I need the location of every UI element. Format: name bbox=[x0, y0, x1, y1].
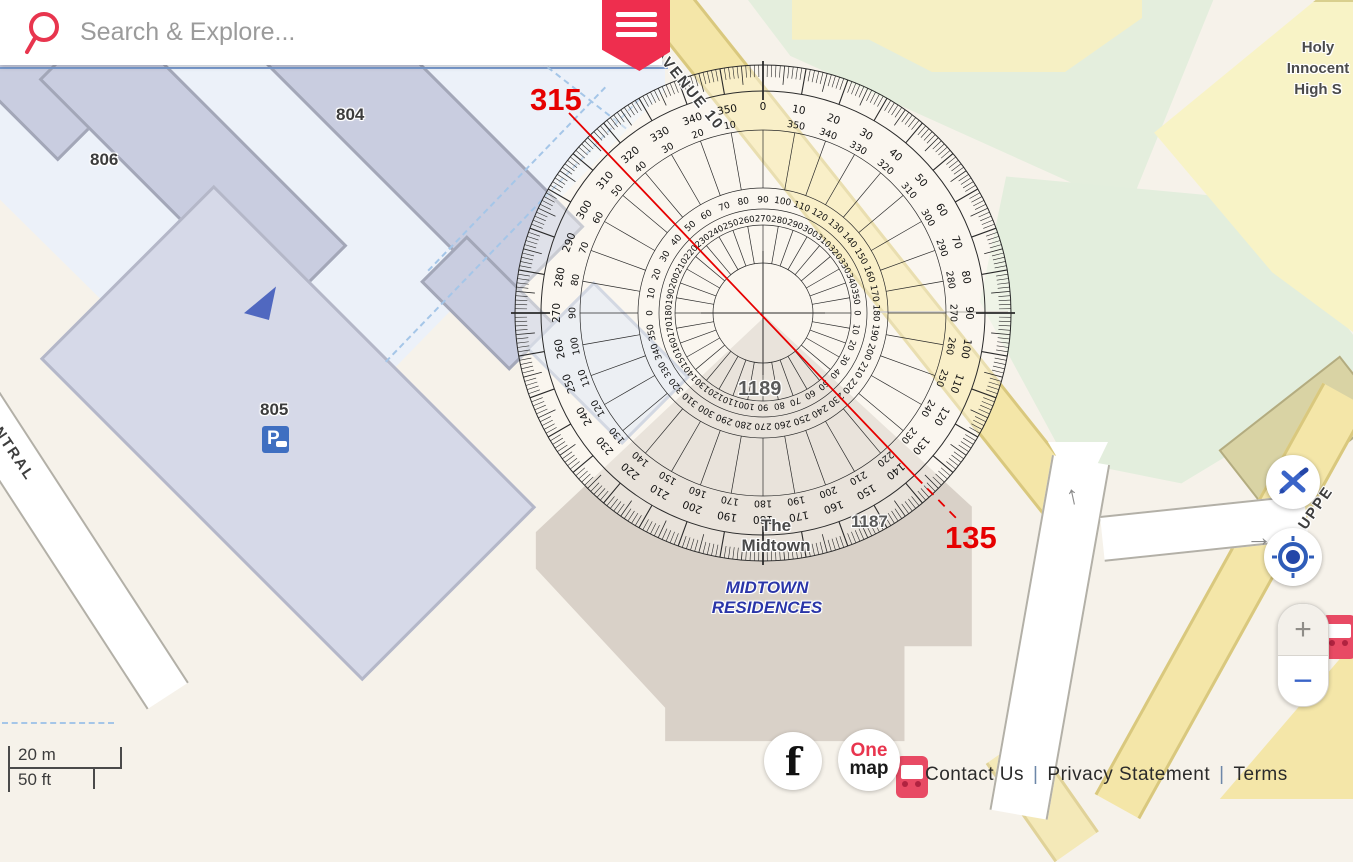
school-label: Holy Innocent High S bbox=[1278, 37, 1353, 100]
zoom-in-button[interactable]: + bbox=[1278, 604, 1328, 656]
privacy-statement-link[interactable]: Privacy Statement bbox=[1047, 764, 1210, 785]
footer-links: Contact Us|Privacy Statement|Terms bbox=[925, 764, 1288, 786]
residences-line2: RESIDENCES bbox=[692, 598, 842, 618]
bearing-label-315: 315 bbox=[530, 82, 582, 118]
svg-text:180: 180 bbox=[754, 498, 772, 509]
svg-text:80: 80 bbox=[737, 196, 750, 208]
terms-link[interactable]: Terms bbox=[1234, 764, 1288, 785]
svg-text:0: 0 bbox=[852, 310, 862, 315]
midtown-name-line1: The bbox=[740, 516, 812, 536]
scale-metric-label: 20 m bbox=[18, 745, 56, 765]
vehicle-body bbox=[1327, 624, 1351, 638]
scale-imperial-label: 50 ft bbox=[18, 770, 51, 790]
link-separator: | bbox=[1024, 764, 1047, 785]
bearing-label-135: 135 bbox=[945, 520, 997, 556]
svg-text:80: 80 bbox=[959, 270, 973, 285]
residences-label: MIDTOWN RESIDENCES bbox=[692, 578, 842, 618]
link-separator: | bbox=[1210, 764, 1233, 785]
protractor-tool[interactable]: 0102030405060708090100110120130140150160… bbox=[503, 53, 1023, 573]
svg-text:270: 270 bbox=[551, 303, 563, 323]
vehicle-wheel bbox=[902, 781, 908, 787]
zoom-control: + − bbox=[1277, 603, 1329, 707]
svg-text:180: 180 bbox=[871, 304, 881, 321]
plus-icon: + bbox=[1294, 613, 1312, 647]
pencil-ruler-icon bbox=[1276, 465, 1310, 499]
svg-text:180: 180 bbox=[665, 305, 675, 321]
onemap-logo-map: map bbox=[849, 760, 888, 778]
residences-line1: MIDTOWN bbox=[692, 578, 842, 598]
drawing-tools-button[interactable] bbox=[1266, 455, 1320, 509]
search-icon[interactable] bbox=[22, 9, 64, 57]
building-label-805: 805 bbox=[260, 400, 288, 420]
school-line2: Innocent bbox=[1278, 58, 1353, 79]
svg-text:0: 0 bbox=[646, 310, 656, 316]
search-input[interactable] bbox=[78, 7, 662, 59]
svg-text:0: 0 bbox=[760, 101, 767, 113]
svg-text:90: 90 bbox=[758, 402, 769, 412]
parking-icon: P bbox=[262, 426, 289, 453]
map-app: { "search": { "placeholder": "Search & E… bbox=[0, 0, 1353, 799]
target-icon bbox=[1271, 535, 1315, 579]
svg-text:90: 90 bbox=[757, 196, 769, 206]
svg-text:10: 10 bbox=[849, 323, 861, 335]
zoom-out-button[interactable]: − bbox=[1278, 656, 1328, 706]
building-label-1187: 1187 bbox=[851, 512, 888, 532]
contact-us-link[interactable]: Contact Us bbox=[925, 764, 1024, 785]
svg-text:10: 10 bbox=[646, 287, 658, 300]
midtown-name-line2: Midtown bbox=[740, 536, 812, 556]
svg-text:90: 90 bbox=[963, 306, 975, 319]
onemap-logo[interactable]: One map bbox=[838, 729, 900, 791]
facebook-button[interactable]: f bbox=[764, 732, 822, 790]
car-glyph bbox=[276, 441, 287, 447]
school-line3: High S bbox=[1278, 79, 1353, 100]
vehicle-wheel bbox=[915, 781, 921, 787]
svg-text:270: 270 bbox=[755, 215, 771, 225]
midtown-name-label: The Midtown bbox=[740, 516, 812, 556]
svg-text:80: 80 bbox=[569, 273, 582, 287]
svg-text:270: 270 bbox=[754, 421, 771, 431]
school-line1: Holy bbox=[1278, 37, 1353, 58]
facebook-icon: f bbox=[785, 739, 801, 784]
locate-me-button[interactable] bbox=[1264, 528, 1322, 586]
svg-text:90: 90 bbox=[568, 307, 579, 319]
vehicle-wheel bbox=[1342, 640, 1348, 646]
building-label-1189: 1189 bbox=[738, 378, 781, 401]
vehicle-body bbox=[901, 765, 923, 779]
building-label-804: 804 bbox=[336, 105, 364, 125]
vehicle-icon[interactable] bbox=[896, 756, 928, 798]
svg-text:10: 10 bbox=[791, 103, 806, 117]
scale-bar: 20 m 50 ft bbox=[8, 744, 138, 794]
svg-text:270: 270 bbox=[948, 304, 959, 322]
building-label-806: 806 bbox=[90, 150, 118, 170]
search-bar bbox=[0, 0, 662, 65]
boundary-dash-4 bbox=[2, 722, 114, 724]
minus-icon: − bbox=[1293, 662, 1313, 701]
vehicle-wheel bbox=[1329, 640, 1335, 646]
